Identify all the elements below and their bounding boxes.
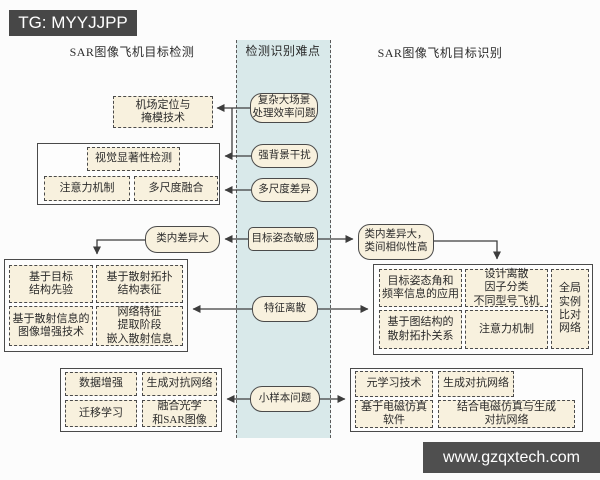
node-network-embedding: 网络特征 提取阶段 嵌入散射信息 (96, 306, 183, 346)
node-target-prior: 基于目标 结构先验 (9, 265, 93, 303)
node-em-simulation: 基于电磁仿真 软件 (355, 400, 433, 428)
node-transfer-learning: 迁移学习 (65, 400, 137, 427)
node-gan-recognition: 生成对抗网络 (438, 371, 514, 397)
node-intra-class-variance: 类内差异大 (145, 226, 220, 253)
node-strong-background: 强背景干扰 (251, 144, 318, 168)
node-airport-masking: 机场定位与 掩模技术 (113, 96, 213, 128)
node-gan-detection: 生成对抗网络 (142, 372, 217, 396)
node-complex-scene: 复杂大场景 处理效率问题 (250, 93, 318, 123)
node-em-gan: 结合电磁仿真与生成 对抗网络 (438, 400, 575, 428)
node-data-augmentation: 数据增强 (65, 372, 137, 396)
node-multiscale-difference: 多尺度差异 (251, 178, 318, 202)
node-multiscale-fusion: 多尺度融合 (134, 176, 218, 201)
node-small-sample: 小样本问题 (250, 386, 320, 412)
column-header-detection: SAR图像飞机目标检测 (52, 43, 212, 60)
node-optical-sar-fusion: 融合光学 和SAR图像 (142, 400, 217, 427)
node-graph-topology: 基于图结构的 散射拓扑关系 (379, 310, 462, 349)
node-pose-frequency: 目标姿态角和 频率信息的应用 (379, 269, 462, 307)
node-visual-saliency: 视觉显著性检测 (87, 147, 180, 171)
node-attention-recognition: 注意力机制 (465, 310, 548, 349)
node-global-instance: 全局 实例 比对 网络 (551, 269, 589, 349)
node-attention-detection: 注意力机制 (44, 176, 130, 201)
watermark-bottom-right: www.gzqxtech.com (423, 442, 600, 473)
node-pose-sensitivity: 目标姿态敏感 (248, 227, 318, 251)
node-scattering-topology: 基于散射拓扑 结构表征 (96, 265, 183, 303)
node-dispersion-factor: 设计离散 因子分类 不同型号飞机 (465, 269, 548, 307)
watermark-top-left: TG: MYYJJPP (9, 10, 137, 36)
node-meta-learning: 元学习技术 (355, 371, 433, 397)
node-intra-inter-class: 类内差异大， 类间相似性高 (358, 224, 434, 260)
column-header-difficulties: 检测识别难点 (238, 42, 328, 59)
diagram-stage: TG: MYYJJPP www.gzqxtech.com SAR图像飞机目标检测… (0, 0, 600, 480)
node-image-enhancement: 基于散射信息的 图像增强技术 (9, 306, 93, 346)
column-header-recognition: SAR图像飞机目标识别 (360, 44, 520, 61)
node-feature-dispersion: 特征离散 (252, 296, 318, 322)
